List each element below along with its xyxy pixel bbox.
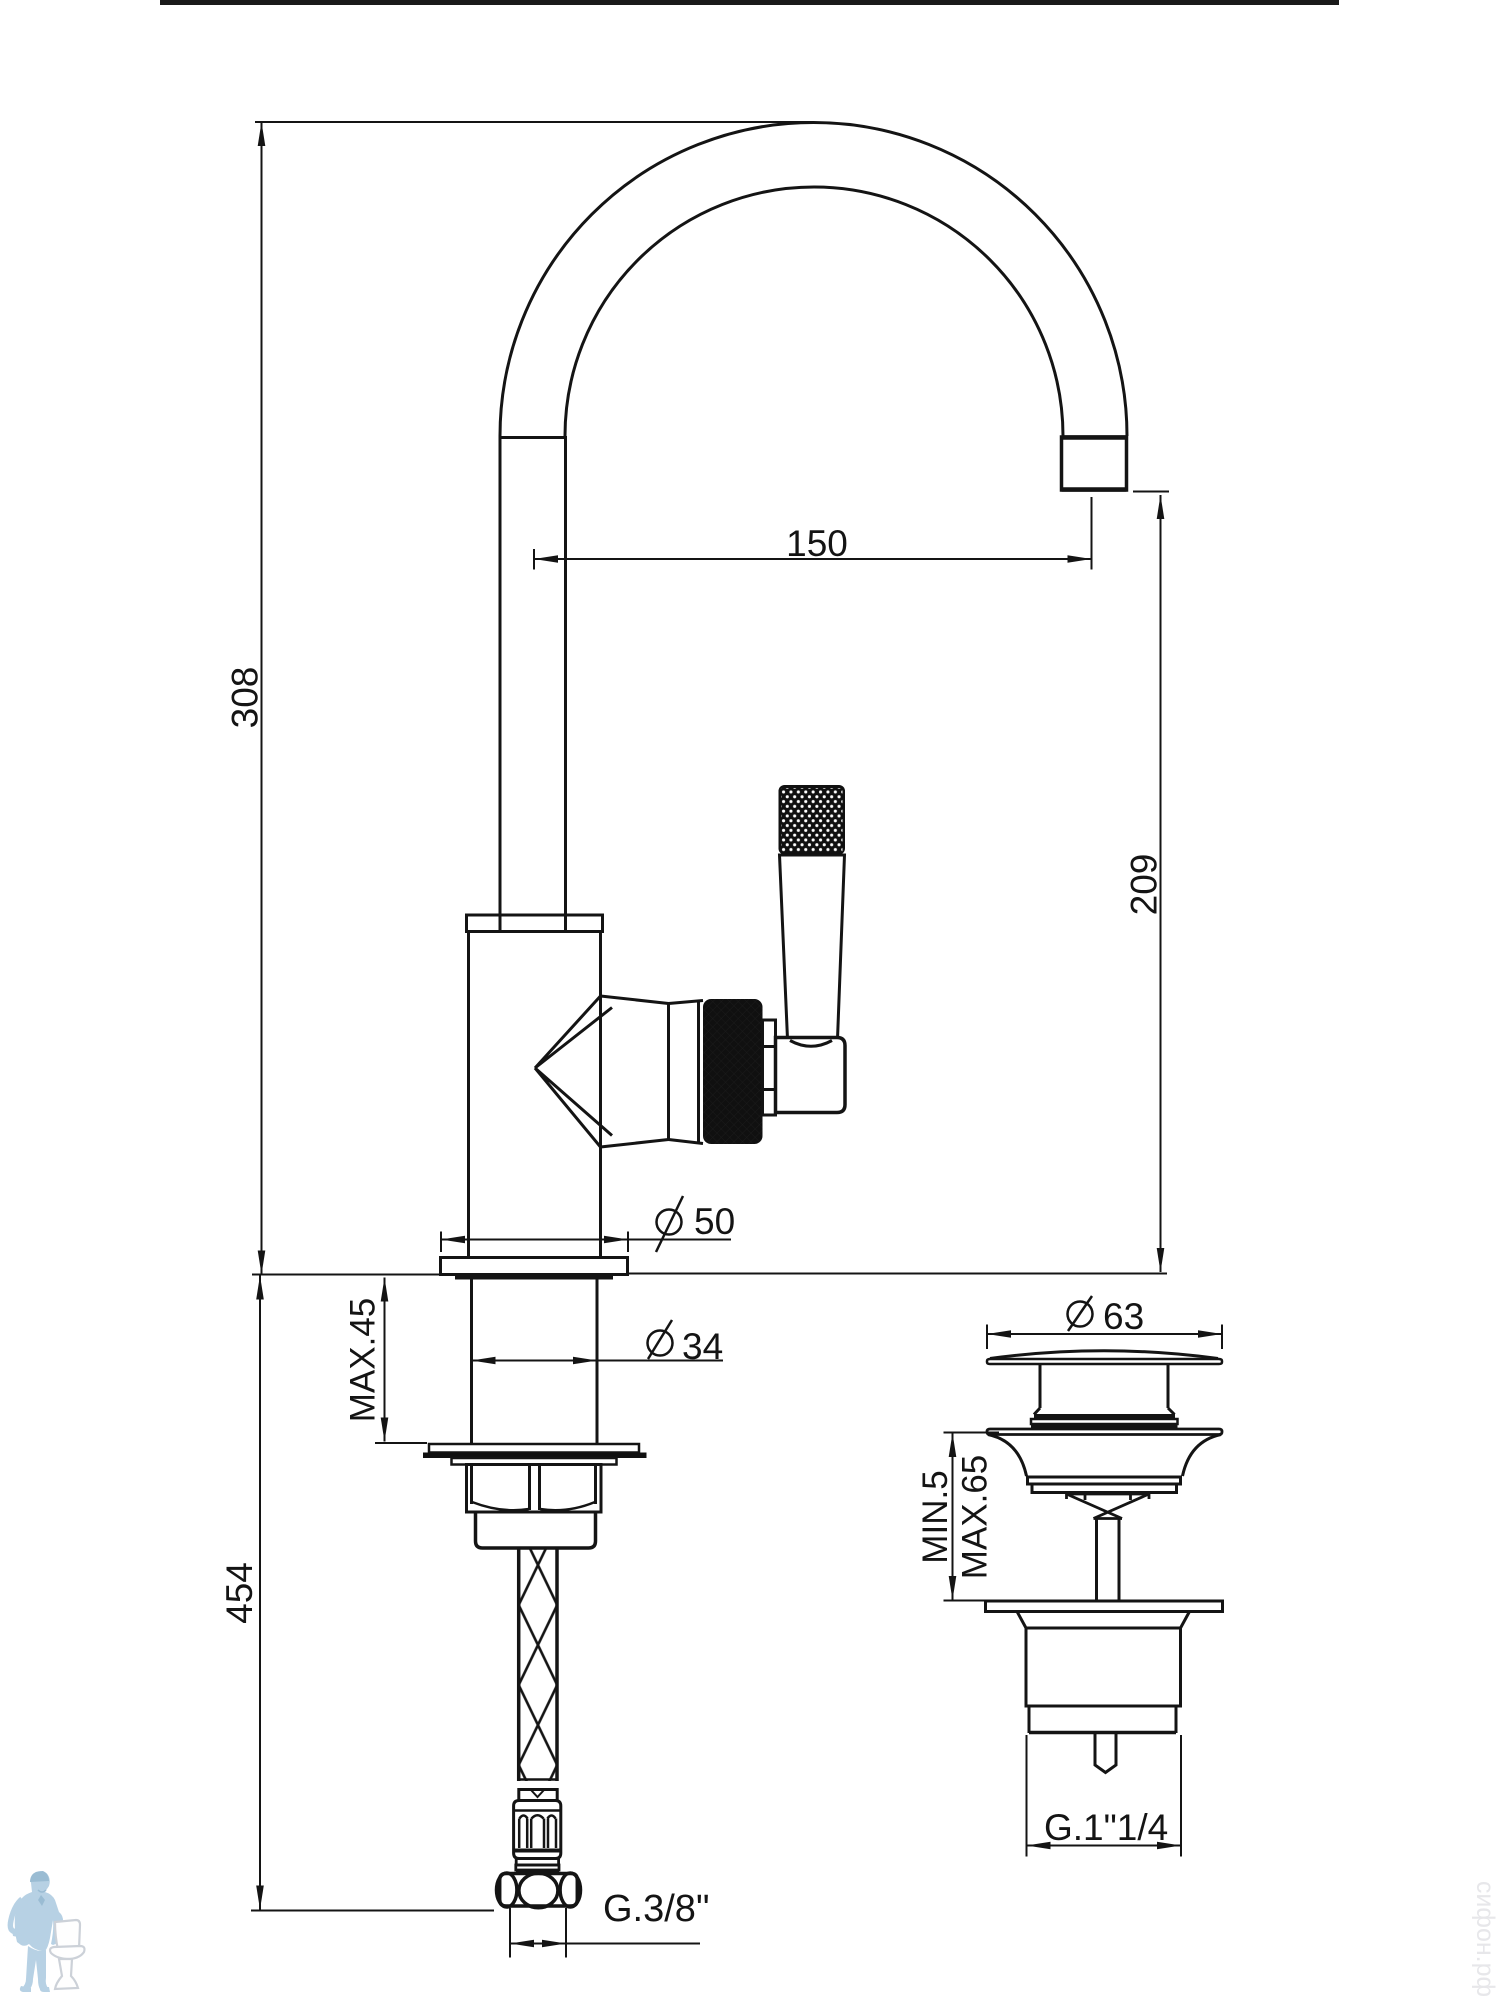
svg-text:150: 150 xyxy=(786,523,848,564)
svg-text:G.3/8": G.3/8" xyxy=(603,1888,709,1930)
svg-text:209: 209 xyxy=(1123,854,1164,916)
svg-text:G.1"1/4: G.1"1/4 xyxy=(1044,1807,1168,1848)
svg-text:454: 454 xyxy=(219,1562,260,1624)
svg-text:MIN.5: MIN.5 xyxy=(916,1470,955,1563)
svg-text:MAX.65: MAX.65 xyxy=(955,1455,994,1580)
svg-text:34: 34 xyxy=(682,1326,723,1367)
svg-text:MAX.45: MAX.45 xyxy=(343,1298,382,1423)
svg-text:сифон.рф: сифон.рф xyxy=(1471,1881,1499,1997)
svg-text:50: 50 xyxy=(694,1201,735,1242)
svg-text:308: 308 xyxy=(224,667,265,729)
svg-text:63: 63 xyxy=(1103,1296,1144,1337)
